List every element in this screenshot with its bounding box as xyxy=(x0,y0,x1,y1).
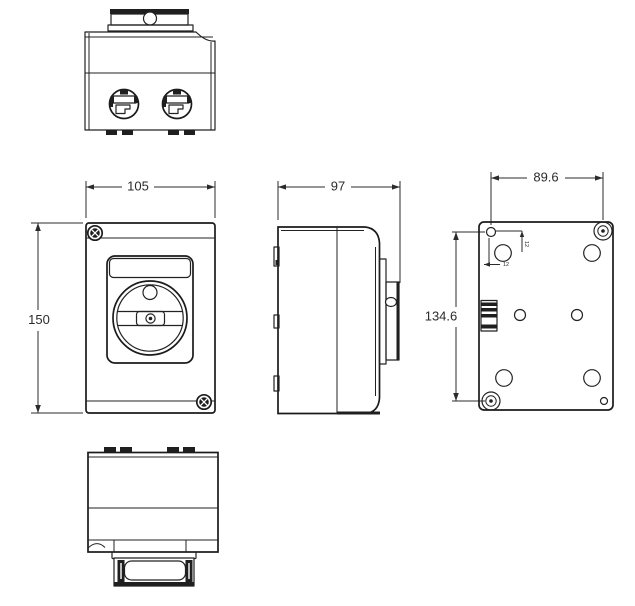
dim-back-offset-h-label: 12 xyxy=(503,262,509,268)
drawing-canvas: 105 150 xyxy=(0,0,635,606)
side-bottom-edge xyxy=(337,412,380,415)
front-screw-bottom-right xyxy=(197,395,211,409)
technical-drawing: 105 150 xyxy=(0,0,635,606)
top-foot xyxy=(106,130,117,135)
dim-side-depth-label: 97 xyxy=(331,178,345,193)
dim-back-width-label: 89.6 xyxy=(533,169,558,184)
top-foot xyxy=(184,130,195,135)
top-handle-pivot xyxy=(144,12,157,25)
side-padlock-hole xyxy=(386,298,397,307)
back-din-clip xyxy=(481,301,497,332)
dim-back-offset-v-label: 12 xyxy=(523,241,529,247)
front-screw-top-left xyxy=(88,226,102,240)
top-foot xyxy=(168,130,179,135)
dim-back-height-label: 134.6 xyxy=(425,308,458,323)
dim-front-height-label: 150 xyxy=(28,312,50,327)
drawing-background xyxy=(0,0,635,606)
dim-front-width-label: 105 xyxy=(127,178,149,193)
top-foot xyxy=(122,130,133,135)
